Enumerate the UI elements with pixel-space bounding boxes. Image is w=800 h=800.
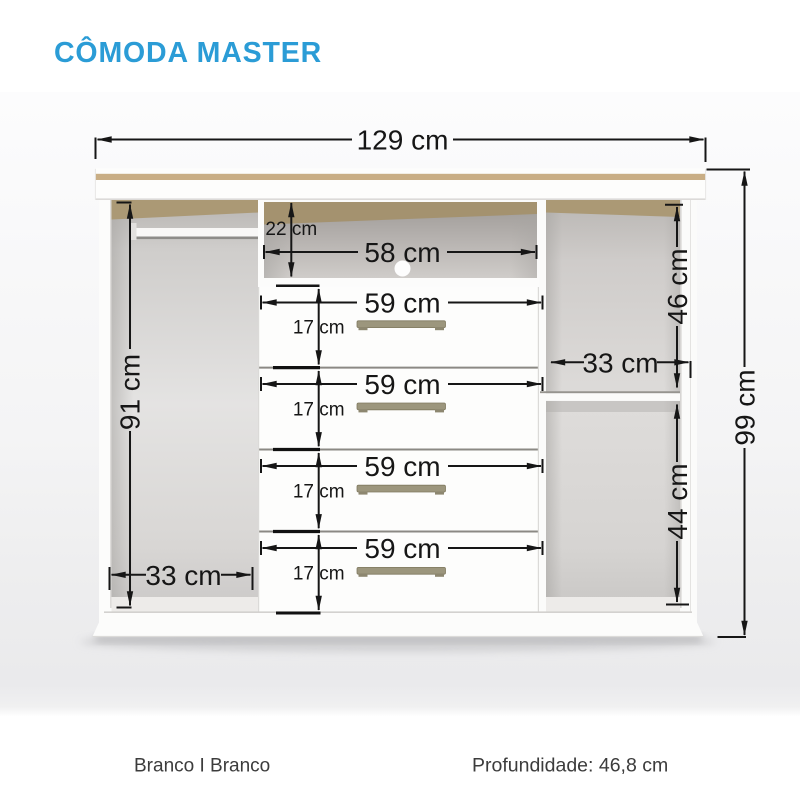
svg-text:17 cm: 17 cm	[293, 563, 345, 584]
svg-text:CÔMODA MASTER: CÔMODA MASTER	[54, 36, 322, 69]
svg-text:59 cm: 59 cm	[364, 451, 440, 482]
svg-text:22 cm: 22 cm	[265, 219, 317, 240]
svg-text:58 cm: 58 cm	[364, 237, 440, 268]
svg-text:46 cm: 46 cm	[662, 248, 693, 324]
svg-text:99 cm: 99 cm	[730, 369, 761, 445]
svg-text:Profundidade: 46,8 cm: Profundidade: 46,8 cm	[472, 755, 668, 777]
svg-text:33 cm: 33 cm	[582, 347, 658, 378]
svg-text:59 cm: 59 cm	[364, 533, 440, 564]
svg-text:59 cm: 59 cm	[364, 288, 440, 319]
svg-text:129 cm: 129 cm	[357, 125, 449, 156]
svg-text:17 cm: 17 cm	[293, 399, 345, 420]
svg-text:91 cm: 91 cm	[115, 354, 146, 430]
svg-text:17 cm: 17 cm	[293, 317, 345, 338]
svg-text:Branco I Branco: Branco I Branco	[134, 756, 270, 777]
svg-text:33 cm: 33 cm	[145, 560, 221, 591]
svg-text:17 cm: 17 cm	[293, 481, 345, 502]
svg-text:59 cm: 59 cm	[364, 369, 440, 400]
svg-text:44 cm: 44 cm	[662, 463, 693, 539]
